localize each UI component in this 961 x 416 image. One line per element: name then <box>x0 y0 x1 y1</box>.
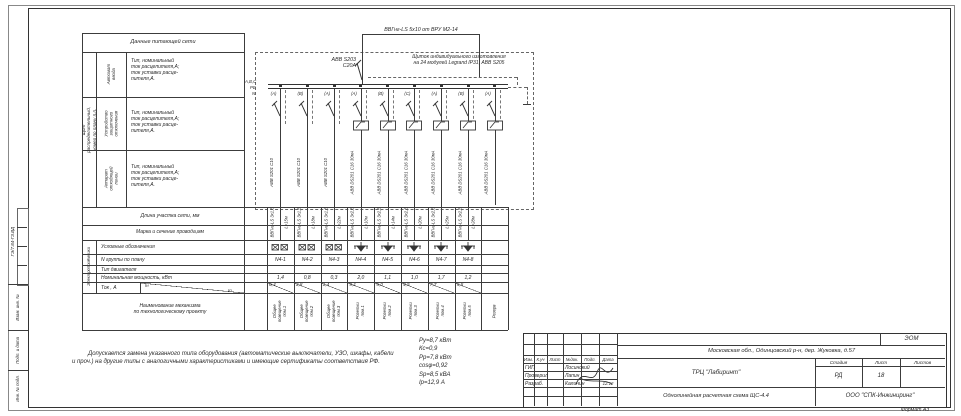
row-label-motor: Тип двигателя <box>101 267 241 273</box>
length-label-text: L=25м <box>445 216 450 228</box>
group-number-cell: N4-6 <box>401 257 428 263</box>
power-cell: 0,8 <box>294 275 321 281</box>
power-cell: 1,0 <box>401 275 428 281</box>
bus-tap <box>413 84 416 87</box>
mechanism-name-cell-text: Резерв <box>492 298 497 324</box>
side-cell-podp: Подп. и дата <box>8 330 28 370</box>
tb-header-col: Дата <box>599 357 617 362</box>
grid-line <box>244 33 245 330</box>
current-cell: 5,5 <box>457 283 471 289</box>
tb-header-col: Подп. <box>581 357 599 362</box>
row-label-power: Номинальная мощность, кВт <box>101 275 241 281</box>
socket-symbol-icon <box>433 242 449 253</box>
bus-tap <box>386 84 389 87</box>
cable-label: ВВГнг-LS 3х2,5 <box>349 205 358 239</box>
length-label-text: L=15м <box>284 216 289 228</box>
tb-line <box>617 387 945 388</box>
device-label-text: АВВ S201 C10 <box>297 158 302 187</box>
tb-header-col: Лист <box>547 357 563 362</box>
tb-line <box>880 333 881 345</box>
phase-label: (А) <box>316 91 330 96</box>
grid-line <box>82 240 508 241</box>
tb-address: Московская обл., Одинцовский р-н, дер. Ж… <box>620 348 943 355</box>
mechanism-name-cell-text: Розетки пом.5 <box>463 298 473 324</box>
feeder-row-label-breaker: Автомат ввода <box>96 52 126 97</box>
bus-tap <box>493 84 496 87</box>
breaker-icon <box>404 99 418 117</box>
side-cell-inv: Инв. № подл. <box>8 370 28 406</box>
length-label: L=20м <box>416 205 425 239</box>
grid-line <box>82 150 244 151</box>
tb-code: ЭОМ <box>880 336 943 343</box>
breaker-icon <box>351 99 365 117</box>
cable-label-text: ВВГнг-LS 3х2,5 <box>351 207 356 237</box>
mechanism-name-cell-text: Розетки пом.1 <box>356 298 366 324</box>
length-label: L=15м <box>282 205 291 239</box>
breaker-icon <box>485 99 499 117</box>
row-label-group: N группы по плану <box>101 257 241 263</box>
side-cell-vzam: Взам. инв. № <box>8 284 28 330</box>
cable-label-text: ВВГнг-LS 3х2,5 <box>458 207 463 237</box>
phase-label: (А) <box>477 91 491 96</box>
side-strip-line <box>8 370 28 371</box>
breaker-icon <box>458 99 472 117</box>
feeder-table-title: Данные питающей сети <box>82 39 244 46</box>
row-label-cable: Марка и сечение провода,мм <box>96 229 244 235</box>
rcd-icon <box>432 119 450 132</box>
socket-symbol-icon <box>353 242 369 253</box>
length-label-text: L=14м <box>392 216 397 228</box>
cable-label-text: ВВГнг-LS 3х2,5 <box>431 207 436 237</box>
tb-header-col: Изм. <box>523 357 534 362</box>
cable-label-text: ВВГнг-LS 3х1,5 <box>297 207 302 237</box>
tb-staff-name: Лосинский <box>565 365 617 371</box>
luminaire-symbol-icon <box>298 243 316 252</box>
panel-note: Щиток индивидуального изготовления на 24… <box>393 54 525 66</box>
cable-label: ВВГнг-LS 3х2,5 <box>402 205 411 239</box>
feeder-desc-2: Тип, номинальный ток расцепителя,А; ток … <box>131 110 243 134</box>
group-number-cell: N4-4 <box>347 257 374 263</box>
tb-line <box>523 396 617 397</box>
grid-line <box>82 33 244 34</box>
cable-label: ВВГнг-LS 3х1,5 <box>295 205 304 239</box>
bus-tail-tick <box>523 104 531 105</box>
length-label: L=25м <box>443 205 452 239</box>
group-number-cell: N4-2 <box>294 257 321 263</box>
bus-tap <box>440 84 443 87</box>
socket-symbol-icon <box>460 242 476 253</box>
rcd-icon <box>486 119 504 132</box>
tb-line <box>523 344 617 345</box>
tb-line <box>900 358 901 387</box>
tb-stage-value: РД <box>815 373 862 380</box>
group-number-cell: N4-3 <box>321 257 348 263</box>
tb-line <box>617 345 945 346</box>
feeder-row-label-rcd: Устройство защитного отключения <box>96 97 126 150</box>
bus-tap <box>467 84 470 87</box>
current-lower-label: Iп <box>228 288 248 293</box>
tb-company: ООО "СПК-Инжиниринг" <box>815 393 945 400</box>
device-label: АВВ DS201 C16 30мА <box>456 142 465 202</box>
length-label: L=22м <box>336 205 345 239</box>
current-cell: 9,1 <box>349 283 363 289</box>
incoming-cable-line <box>362 34 480 35</box>
mechanism-name-cell: Розетки пом.3 <box>401 294 427 328</box>
device-label-text: АВВ DS201 C16 30мА <box>404 150 409 194</box>
bus-tap <box>333 84 336 87</box>
length-label-text: L=22м <box>338 216 343 228</box>
grid-line <box>82 254 508 255</box>
tb-staff-role: ГИП <box>525 365 563 371</box>
device-label: АВВ DS201 C16 30мА <box>483 142 492 202</box>
row-label-length: Длина участка сети, мм <box>96 213 244 219</box>
device-label-text: АВВ S201 C10 <box>270 158 275 187</box>
grid-line <box>82 33 83 330</box>
row-label-symbols: Условные обозначения <box>101 244 241 250</box>
power-cell: 1,1 <box>374 275 401 281</box>
doc-code: ГЭ/7.84-ГЗ.ВД <box>8 200 17 284</box>
length-label: L=28м <box>470 205 479 239</box>
bus-tail-drop <box>527 87 528 104</box>
rcd-icon <box>459 119 477 132</box>
cable-label: ВВГнг-LS 3х1,5 <box>268 205 277 239</box>
device-label-text: АВВ DS201 C16 30мА <box>378 150 383 194</box>
breaker-icon <box>431 99 445 117</box>
tb-line <box>523 387 617 388</box>
bus-pe-label: PE <box>250 85 266 90</box>
main-breaker-label: АВВ S203 С20А <box>312 57 356 70</box>
consumers-group-label: Электроприёмники <box>82 240 96 293</box>
device-label-text: АВВ DS201 C16 30мА <box>485 150 490 194</box>
group-number-cell: N4-5 <box>374 257 401 263</box>
incoming-cable-label: ВВГнг-LS 5х10 от ВРУ М2-14 <box>362 27 480 33</box>
group-number-cell: N4-1 <box>267 257 294 263</box>
current-cell: 1,4 <box>323 283 337 289</box>
length-label-text: L=18м <box>311 216 316 228</box>
group-number-cell: N4-7 <box>428 257 455 263</box>
tb-staff-role: Разраб. <box>525 381 563 387</box>
phase-label: (С) <box>396 91 410 96</box>
grid-line <box>82 330 508 331</box>
length-label: L=18м <box>309 205 318 239</box>
rcd-icon <box>379 119 397 132</box>
power-cell: 2,0 <box>347 275 374 281</box>
tb-staff-date: 12.12 <box>599 381 617 386</box>
current-cell: 5,0 <box>376 283 390 289</box>
current-cell: 3,8 <box>296 283 310 289</box>
power-cell: 1,4 <box>267 275 294 281</box>
cable-label: ВВГнг-LS 3х2,5 <box>376 205 385 239</box>
tb-staff-role: Проверил <box>525 373 563 379</box>
current-cell: 4,5 <box>403 283 417 289</box>
tb-line <box>862 358 863 387</box>
phase-label: (А) <box>423 91 437 96</box>
mechanism-name-cell: Резерв <box>482 294 508 328</box>
phase-label: (А) <box>343 91 357 96</box>
tb-drawing-title: Однолинейная расчетная схема ЩС-4.4 <box>617 393 815 400</box>
tb-stage-label: Стадия <box>815 360 862 366</box>
socket-symbol-icon <box>406 242 422 253</box>
tb-staff-name: Лапин <box>565 373 617 379</box>
rcd-icon <box>405 119 423 132</box>
mechanism-name-cell: Общее освещение пом.2 <box>294 294 320 328</box>
cable-label-text: ВВГнг-LS 3х2,5 <box>378 207 383 237</box>
side-grid-line <box>17 265 27 266</box>
breaker-icon <box>324 99 338 117</box>
mechanism-name-cell: Общее освещение пом.3 <box>321 294 347 328</box>
bus-tap <box>306 84 309 87</box>
mechanism-name-cell-text: Розетки пом.3 <box>410 298 420 324</box>
group-number-cell: N4-8 <box>455 257 482 263</box>
tb-project: ТРЦ "Лабиринт" <box>617 369 815 376</box>
phase-label: (А) <box>262 91 276 96</box>
breaker-icon <box>378 99 392 117</box>
device-label: АВВ S201 C10 <box>268 142 277 202</box>
grid-line <box>82 273 508 274</box>
drawing-sheet: ГЭ/7.84-ГЗ.ВД Взам. инв. № Подп. и дата … <box>0 0 961 416</box>
grid-line <box>508 207 509 330</box>
format-label: Формат А3 <box>885 407 945 413</box>
power-cell: 0,3 <box>321 275 348 281</box>
tb-line <box>617 333 618 406</box>
side-strip-line <box>8 284 28 285</box>
mechanism-name-cell: Общее освещение пом.1 <box>267 294 293 328</box>
breaker-icon <box>270 99 284 117</box>
device-label-text: АВВ S201 C10 <box>324 158 329 187</box>
device-label: АВВ DS201 C16 30мА <box>349 142 358 202</box>
rcd-icon <box>352 119 370 132</box>
tb-header-col: №док. <box>563 357 581 362</box>
side-grid-line <box>17 227 27 228</box>
bus-tap <box>279 84 282 87</box>
power-cell: 1,7 <box>428 275 455 281</box>
tb-line <box>815 366 945 367</box>
bus-phases-label: А,В,С <box>245 79 267 84</box>
grid-line <box>82 52 244 53</box>
cable-label-text: ВВГнг-LS 3х1,5 <box>324 207 329 237</box>
neutral-dash-line <box>339 90 340 124</box>
side-strip-line <box>8 330 28 331</box>
device-label: АВВ S201 C10 <box>322 142 331 202</box>
cable-label: ВВГнг-LS 3х1,5 <box>322 205 331 239</box>
bus-tail-dash <box>508 87 527 88</box>
phase-label: (В) <box>289 91 303 96</box>
pe-n-routing <box>368 77 517 78</box>
neutral-dash-line <box>285 90 286 124</box>
feeder-desc-1: Тип, номинальный ток расцепителя,А; ток … <box>131 58 243 82</box>
feeder-group-label: Щит распределительный, номер по плану п.… <box>82 52 96 207</box>
cable-label: ВВГнг-LS 3х2,5 <box>429 205 438 239</box>
tb-sheet-value: 18 <box>862 373 900 380</box>
mechanism-name-cell: Розетки пом.5 <box>455 294 481 328</box>
cable-label-text: ВВГнг-LS 3х1,5 <box>270 207 275 237</box>
feeder-desc-3: Тип, номинальный ток расцепителя,А; ток … <box>131 164 243 188</box>
mechanism-name-cell: Розетки пом.2 <box>375 294 401 328</box>
length-label-text: L=20м <box>418 216 423 228</box>
grid-line <box>96 52 97 207</box>
mechanism-name-cell-text: Розетки пом.2 <box>383 298 393 324</box>
device-label-text: АВВ DS201 C16 30мА <box>431 150 436 194</box>
row-label-mechanism: Наименование механизма по технологическо… <box>96 303 244 315</box>
power-cell: 1,2 <box>455 275 482 281</box>
pe-n-drop <box>517 77 518 85</box>
device-label-text: АВВ DS201 C16 30мА <box>458 150 463 194</box>
current-upper-label: Iн <box>145 283 165 288</box>
tb-line <box>617 358 945 359</box>
cable-label: ВВГнг-LS 3х2,5 <box>456 205 465 239</box>
luminaire-symbol-icon <box>271 243 289 252</box>
length-label: L=10м <box>363 205 372 239</box>
mechanism-name-cell-text: Общее освещение пом.3 <box>327 298 341 324</box>
grid-line <box>82 97 244 98</box>
neutral-dash-line <box>312 90 313 124</box>
tb-sheet-label: Лист <box>862 360 900 366</box>
grid-line <box>126 52 127 207</box>
breaker-icon <box>297 99 311 117</box>
mechanism-name-cell-text: Общее освещение пом.2 <box>300 298 314 324</box>
device-label: АВВ S201 C10 <box>295 142 304 202</box>
side-grid <box>17 208 29 286</box>
disclaimer-note: Допускается замена указанного типа обору… <box>72 351 394 367</box>
mechanism-name-cell: Розетки пом.4 <box>428 294 454 328</box>
cable-label-text: ВВГнг-LS 3х2,5 <box>404 207 409 237</box>
mechanism-name-cell-text: Розетки пом.4 <box>436 298 446 324</box>
tb-header-col: К.уч <box>534 357 547 362</box>
mechanism-name-cell-text: Общее освещение пом.1 <box>273 298 287 324</box>
side-grid-line <box>17 246 27 247</box>
length-label-text: L=10м <box>365 216 370 228</box>
project-summary: Ру=8,7 кВт Кс=0,9 Рр=7,8 кВт cosφ=0,92 S… <box>419 337 509 387</box>
current-cell: 7,7 <box>430 283 444 289</box>
row-label-current: Ток , А <box>101 285 141 291</box>
grid-line <box>82 265 508 266</box>
socket-symbol-icon <box>380 242 396 253</box>
luminaire-symbol-icon <box>325 243 343 252</box>
device-label-text: АВВ DS201 C16 30мА <box>351 150 356 194</box>
device-label: АВВ DS201 C16 30мА <box>402 142 411 202</box>
feeder-row-label-outgoing: Аппарат отходящей линии <box>96 150 126 207</box>
grid-line <box>96 240 97 293</box>
grid-line <box>140 282 141 293</box>
bus-tap <box>359 84 362 87</box>
length-label-text: L=28м <box>472 216 477 228</box>
device-label: АВВ DS201 C16 30мА <box>429 142 438 202</box>
device-label: АВВ DS201 C16 30мА <box>376 142 385 202</box>
length-label: L=14м <box>390 205 399 239</box>
tb-sheets-label: Листов <box>900 360 945 366</box>
phase-label: (В) <box>450 91 464 96</box>
main-breaker-icon <box>352 57 368 81</box>
phase-label: (В) <box>370 91 384 96</box>
current-cell: 6,4 <box>269 283 283 289</box>
mechanism-name-cell: Розетки пом.1 <box>348 294 374 328</box>
